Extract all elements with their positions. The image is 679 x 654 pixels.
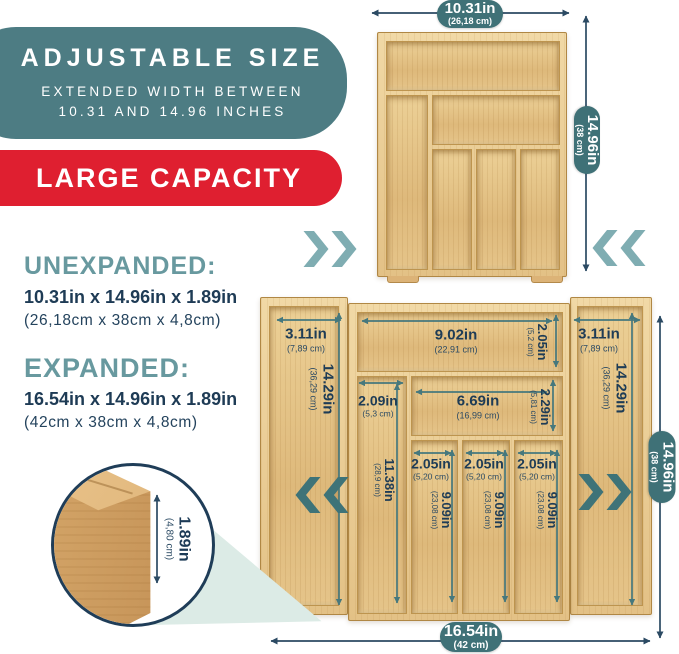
dim-value: 11.38in <box>381 458 396 501</box>
large-capacity-badge: LARGE CAPACITY <box>0 150 342 206</box>
adjustable-size-badge: ADJUSTABLE SIZE EXTENDED WIDTH BETWEEN 1… <box>0 27 347 139</box>
dim-slot2-height: 9.09in (23,08 cm) <box>482 491 506 529</box>
dim-value-cm: (22,91 cm) <box>434 344 477 354</box>
dim-value-cm: (36,29 cm) <box>602 366 612 409</box>
dim-left-panel-height: 14.29in (36,29 cm) <box>309 364 336 415</box>
dim-value-cm: (7,89 cm) <box>580 343 618 353</box>
dim-value: 14.29in <box>612 363 629 414</box>
dim-top-comp-width: 9.02in (22,91 cm) <box>434 328 477 355</box>
dim-thickness: 1.89in (4,80 cm) <box>163 516 192 561</box>
dim-value-cm: (7,89 cm) <box>287 343 325 353</box>
small-tray-slot-2 <box>476 149 516 270</box>
dim-mid-comp-height: 2.29in (5,81 cm) <box>528 389 552 426</box>
large-tray-height-in: 14.96in <box>659 442 676 493</box>
chevrons-right-icon <box>304 231 357 267</box>
dim-value: 3.11in <box>285 327 327 344</box>
small-tray-foot-right <box>531 276 563 283</box>
dim-slot3-height: 9.09in (23,08 cm) <box>535 491 559 529</box>
dim-right-panel-width: 3.11in (7,89 cm) <box>578 327 620 354</box>
small-tray-slot-1 <box>432 149 472 270</box>
large-tray-height-pill: 14.96in (38 cm) <box>649 431 676 503</box>
dim-value-cm: (28,9 cm) <box>372 463 381 497</box>
dim-value-cm: (23,08 cm) <box>429 491 438 529</box>
dim-value: 9.02in <box>435 328 478 345</box>
large-tray-width-cm: (42 cm) <box>453 640 488 651</box>
small-tray-width-cm: (26,18 cm) <box>448 17 492 27</box>
chevrons-right-icon <box>579 474 632 510</box>
dim-value-cm: (23,08 cm) <box>535 491 544 529</box>
dim-value-cm: (5,3 cm) <box>362 409 393 419</box>
small-tray-height-cm: (38 cm) <box>574 124 584 156</box>
dim-value: 9.09in <box>544 492 559 529</box>
dim-value-cm: (5,2 cm) <box>525 327 534 356</box>
dim-slot3-width: 2.05in (5,20 cm) <box>517 456 557 481</box>
dim-value-cm: (23,08 cm) <box>482 491 491 529</box>
dim-value-cm: (5,20 cm) <box>519 472 555 482</box>
large-tray-width-pill: 16.54in (42 cm) <box>440 622 502 652</box>
dim-value-cm: (4,80 cm) <box>163 518 174 560</box>
adjustable-size-title: ADJUSTABLE SIZE <box>21 44 325 73</box>
dim-value-cm: (5,20 cm) <box>413 472 449 482</box>
small-tray-slot-3 <box>520 149 560 270</box>
dim-value: 1.89in <box>175 516 193 561</box>
small-tray-width-pill: 10.31in (26,18 cm) <box>437 0 503 28</box>
small-tray-width-in: 10.31in <box>445 1 496 18</box>
small-tray-wide-compartment <box>432 95 560 145</box>
expanded-heading: EXPANDED: <box>24 354 237 384</box>
dim-value: 2.05in <box>411 456 451 472</box>
dim-slot1-height: 9.09in (23,08 cm) <box>429 491 453 529</box>
dim-right-panel-height: 14.29in (36,29 cm) <box>602 363 629 414</box>
unexpanded-heading: UNEXPANDED: <box>24 253 237 281</box>
dim-value: 2.05in <box>464 456 504 472</box>
size-specs: UNEXPANDED: 10.31in x 14.96in x 1.89in (… <box>24 253 237 432</box>
unexpanded-inches: 10.31in x 14.96in x 1.89in <box>24 287 237 308</box>
large-capacity-title: LARGE CAPACITY <box>36 163 302 194</box>
small-tray-left-compartment <box>386 95 428 270</box>
adjustable-size-subtitle-line2: 10.31 AND 14.96 INCHES <box>59 102 287 122</box>
dim-value: 2.05in <box>517 456 557 472</box>
expanded-cm: (42cm x 38cm x 4,8cm) <box>24 414 237 432</box>
dim-left-col-height: 11.38in (28,9 cm) <box>372 458 396 501</box>
dim-value: 6.69in <box>457 394 500 411</box>
dim-value: 2.05in <box>534 324 549 361</box>
dim-value: 2.09in <box>358 393 398 409</box>
dim-value: 9.09in <box>438 492 453 529</box>
small-tray-height-pill: 14.96in (38 cm) <box>574 106 600 174</box>
dim-value: 3.11in <box>578 327 620 344</box>
chevrons-left-icon <box>593 230 646 266</box>
dim-mid-comp-width: 6.69in (16,99 cm) <box>456 394 499 421</box>
large-tray-width-in: 16.54in <box>444 623 498 641</box>
dim-slot1-width: 2.05in (5,20 cm) <box>411 456 451 481</box>
dim-value: 2.29in <box>537 389 552 426</box>
dim-value: 9.09in <box>491 492 506 529</box>
small-tray <box>377 32 567 277</box>
product-infographic: ADJUSTABLE SIZE EXTENDED WIDTH BETWEEN 1… <box>0 0 679 654</box>
expanded-inches: 16.54in x 14.96in x 1.89in <box>24 389 237 410</box>
dim-value-cm: (16,99 cm) <box>456 410 499 420</box>
dim-value-cm: (36,29 cm) <box>309 367 319 410</box>
small-tray-top-compartment <box>386 41 560 91</box>
dim-value: 14.29in <box>319 364 336 415</box>
dim-left-panel-width: 3.11in (7,89 cm) <box>285 327 327 354</box>
large-tray-height-cm: (38 cm) <box>649 451 659 483</box>
small-tray-height-in: 14.96in <box>584 115 601 166</box>
small-tray-foot-left <box>387 276 419 283</box>
dim-slot2-width: 2.05in (5,20 cm) <box>464 456 504 481</box>
dim-left-col-width: 2.09in (5,3 cm) <box>358 393 398 418</box>
chevrons-left-icon <box>296 477 349 513</box>
dim-value-cm: (5,81 cm) <box>528 390 537 424</box>
unexpanded-cm: (26,18cm x 38cm x 4,8cm) <box>24 312 237 330</box>
dim-top-comp-height: 2.05in (5,2 cm) <box>525 324 549 361</box>
dim-value-cm: (5,20 cm) <box>466 472 502 482</box>
adjustable-size-subtitle-line1: EXTENDED WIDTH BETWEEN <box>41 82 303 102</box>
